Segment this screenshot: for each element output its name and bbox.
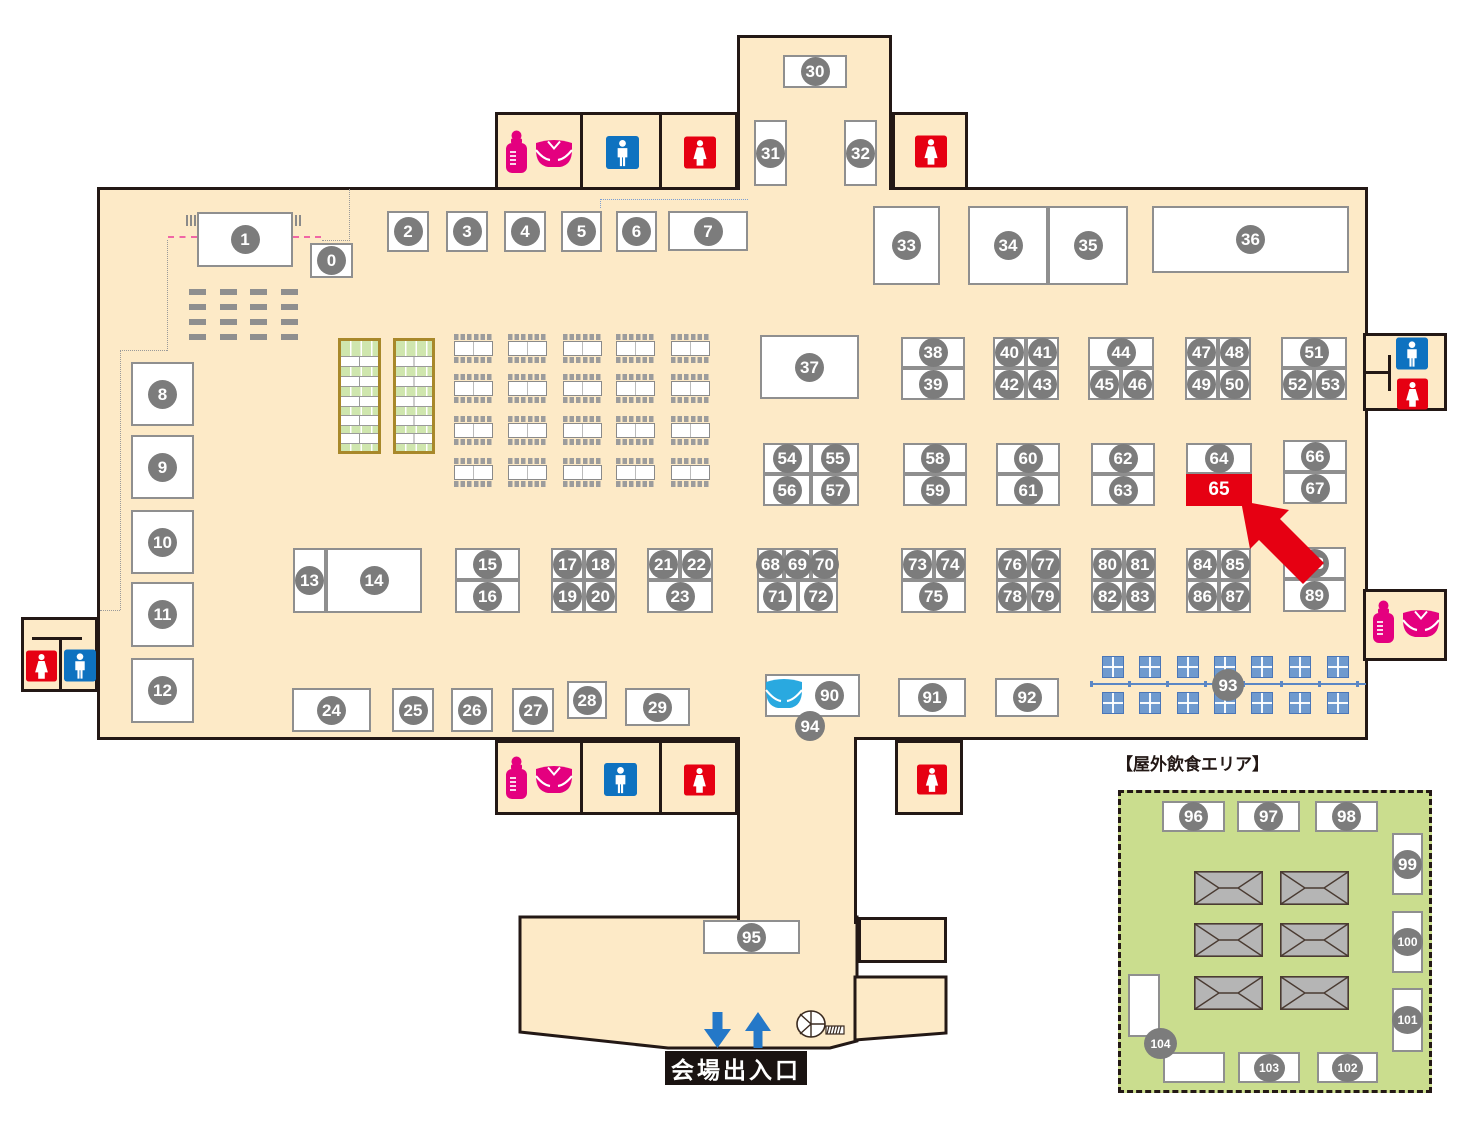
chair-mark — [281, 334, 298, 340]
wall-divider — [659, 112, 662, 190]
booth-67: 67 — [1283, 472, 1347, 504]
booth-19: 19 — [551, 580, 584, 613]
booth-44: 44 — [1088, 337, 1154, 368]
booth-71: 71 — [757, 580, 798, 613]
toilet-female-icon — [684, 764, 715, 796]
booth-2: 2 — [387, 211, 429, 252]
dotted-line-blue — [600, 199, 748, 200]
chair-mark — [281, 289, 298, 295]
booth-98: 98 — [1315, 801, 1378, 832]
blue-table — [1251, 692, 1273, 714]
booth-number: 83 — [1126, 582, 1155, 611]
booth-number: 33 — [892, 231, 921, 260]
booth-number: 92 — [1013, 683, 1042, 712]
booth-number: 27 — [519, 696, 548, 725]
table — [671, 381, 710, 396]
booth-number: 60 — [1014, 444, 1043, 473]
booth-number: 11 — [148, 600, 177, 629]
chair-row — [671, 397, 710, 403]
outdoor-room — [1163, 1052, 1225, 1083]
chair-row — [563, 481, 602, 487]
booth-number: 30 — [801, 57, 830, 86]
table — [616, 423, 655, 438]
chair-row — [563, 458, 602, 464]
booth-42: 42 — [993, 368, 1026, 400]
booth-number: 12 — [148, 676, 177, 705]
booth-15: 15 — [455, 548, 520, 580]
booth-51: 51 — [1281, 337, 1347, 368]
low-table — [396, 396, 432, 407]
chair-row — [671, 439, 710, 445]
chair-mark — [250, 319, 267, 325]
booth-number: 97 — [1254, 802, 1283, 831]
low-table — [341, 356, 378, 367]
booth-number: 36 — [1236, 225, 1265, 254]
booth-number: 23 — [666, 582, 695, 611]
booth-number: 59 — [921, 476, 950, 505]
booth-number: 74 — [936, 550, 965, 579]
table — [454, 465, 493, 480]
diaper-icon — [763, 674, 805, 715]
booth-29: 29 — [625, 688, 690, 726]
booth-number: 18 — [586, 550, 615, 579]
low-table — [341, 415, 378, 426]
booth-number: 62 — [1109, 444, 1138, 473]
stage-marker-pink — [168, 236, 197, 238]
table — [563, 465, 602, 480]
booth-number: 5 — [567, 217, 596, 246]
booth-97: 97 — [1237, 801, 1300, 832]
dotted-line — [322, 240, 350, 241]
baby-care-icon — [503, 756, 575, 800]
booth-number: 4 — [511, 217, 540, 246]
booth-number: 51 — [1300, 338, 1329, 367]
booth-9: 9 — [131, 435, 194, 499]
booth-45: 45 — [1088, 368, 1121, 400]
booth-number: 24 — [317, 696, 346, 725]
table — [454, 423, 493, 438]
booth-86: 86 — [1186, 580, 1219, 613]
wall-divider — [580, 112, 583, 190]
wall-divider — [1388, 355, 1391, 391]
booth-number: 91 — [918, 683, 947, 712]
booth-number: 25 — [399, 696, 428, 725]
chair-row — [671, 481, 710, 487]
booth-11: 11 — [131, 582, 194, 647]
booth-number: 63 — [1109, 476, 1138, 505]
stage-marker-pink — [293, 236, 321, 238]
chair-row — [616, 357, 655, 363]
booth-number: 50 — [1220, 370, 1249, 399]
arrow-up-icon — [745, 1012, 771, 1048]
south-corridor — [737, 737, 857, 924]
chair-row — [671, 357, 710, 363]
highlight-arrow-icon — [1241, 501, 1341, 601]
chair-row — [508, 481, 547, 487]
blue-table — [1289, 692, 1311, 714]
low-table — [396, 356, 432, 367]
table — [563, 381, 602, 396]
booth-62: 62 — [1091, 443, 1155, 474]
booth-number: 44 — [1107, 338, 1136, 367]
blue-table — [1139, 656, 1161, 678]
booth-74: 74 — [934, 548, 966, 580]
booth-number: 26 — [458, 696, 487, 725]
booth-80: 80 — [1091, 548, 1124, 580]
table — [508, 465, 547, 480]
blue-table — [1177, 692, 1199, 714]
booth-21: 21 — [647, 548, 680, 580]
booth-25: 25 — [392, 688, 434, 732]
outdoor-area-title: 【屋外飲食エリア】 — [1116, 750, 1269, 775]
side-room — [858, 917, 947, 963]
booth-17: 17 — [551, 548, 584, 580]
chair-row — [508, 397, 547, 403]
chair-mark — [189, 304, 206, 310]
booth-number: 46 — [1123, 370, 1152, 399]
booth-22: 22 — [680, 548, 713, 580]
toilet-female-icon — [26, 650, 57, 682]
chair-row — [454, 481, 493, 487]
booth-56: 56 — [763, 474, 811, 506]
booth-94-marker: 94 — [795, 711, 825, 741]
baby-care-icon — [503, 130, 575, 174]
booth-53: 53 — [1314, 368, 1347, 400]
chair-row — [616, 481, 655, 487]
booth-13: 13 — [293, 548, 326, 613]
dotted-line — [100, 610, 120, 611]
table — [508, 381, 547, 396]
booth-20: 20 — [584, 580, 617, 613]
booth-60: 60 — [996, 443, 1060, 474]
chair-row — [563, 439, 602, 445]
blue-table — [1177, 656, 1199, 678]
wall-divider — [1366, 371, 1390, 374]
chair-row — [616, 397, 655, 403]
booth-10: 10 — [131, 510, 194, 574]
booth-number: 64 — [1205, 444, 1234, 473]
booth-70: 70 — [811, 548, 838, 580]
chair-row — [616, 416, 655, 422]
booth-46: 46 — [1121, 368, 1154, 400]
booth-number: 19 — [553, 582, 582, 611]
booth-number: 82 — [1093, 582, 1122, 611]
booth-number: 37 — [795, 353, 824, 382]
booth-number: 16 — [473, 582, 502, 611]
chair-row — [454, 357, 493, 363]
chair-row — [563, 357, 602, 363]
booth-73: 73 — [901, 548, 934, 580]
booth-number: 56 — [773, 476, 802, 505]
toilet-male-icon — [1396, 337, 1428, 370]
booth-18: 18 — [584, 548, 617, 580]
booth-43: 43 — [1026, 368, 1059, 400]
booth-number: 22 — [682, 550, 711, 579]
dotted-line — [120, 350, 121, 610]
booth-number: 81 — [1126, 550, 1155, 579]
table — [671, 465, 710, 480]
booth-number: 29 — [643, 693, 672, 722]
wall-divider — [659, 740, 662, 815]
booth-number: 99 — [1393, 850, 1422, 879]
booth-50: 50 — [1218, 368, 1251, 400]
booth-37: 37 — [760, 335, 859, 399]
booth-number: 100 — [1392, 928, 1423, 956]
chair-row — [671, 334, 710, 340]
blue-table — [1139, 692, 1161, 714]
booth-number: 15 — [473, 550, 502, 579]
tent — [1194, 976, 1263, 1010]
booth-number: 72 — [804, 582, 833, 611]
chair-row — [563, 416, 602, 422]
wall-divider — [59, 640, 62, 690]
chair-mark — [220, 304, 237, 310]
booth-number: 103 — [1254, 1054, 1285, 1082]
chair-row — [616, 334, 655, 340]
chair-row — [616, 439, 655, 445]
booth-41: 41 — [1026, 337, 1059, 368]
booth-61: 61 — [996, 474, 1060, 506]
dotted-line — [349, 189, 350, 241]
tent — [1280, 871, 1349, 905]
booth-30: 30 — [783, 55, 847, 88]
table — [616, 381, 655, 396]
booth-number: 70 — [810, 550, 839, 579]
toilet-female-icon — [684, 136, 716, 169]
low-table — [396, 415, 432, 426]
booth-93-marker: 93 — [1212, 669, 1244, 701]
booth-5: 5 — [561, 211, 602, 252]
blue-table — [1102, 656, 1124, 678]
booth-number: 47 — [1187, 338, 1216, 367]
chair-row — [671, 374, 710, 380]
dotted-line — [120, 350, 167, 351]
chair-row — [454, 397, 493, 403]
booth-7: 7 — [668, 211, 748, 251]
booth-number: 53 — [1316, 370, 1345, 399]
chair-mark — [220, 319, 237, 325]
chair-row — [616, 458, 655, 464]
booth-number: 66 — [1301, 442, 1330, 471]
tent — [1194, 871, 1263, 905]
booth-75: 75 — [901, 580, 966, 613]
chair-row — [454, 439, 493, 445]
table — [508, 341, 547, 356]
booth-35: 35 — [1048, 206, 1128, 285]
booth-number: 21 — [649, 550, 678, 579]
booth-number: 96 — [1179, 802, 1208, 831]
booth-number: 7 — [694, 217, 723, 246]
chair-mark — [189, 334, 206, 340]
chair-row — [563, 397, 602, 403]
booth-number: 10 — [148, 528, 177, 557]
table — [563, 341, 602, 356]
table — [671, 423, 710, 438]
table — [508, 423, 547, 438]
booth-34: 34 — [968, 206, 1048, 285]
booth-12: 12 — [131, 658, 194, 723]
booth-24: 24 — [292, 688, 371, 732]
toilet-female-icon — [1397, 378, 1428, 410]
booth-99: 99 — [1392, 833, 1423, 895]
booth-number: 86 — [1188, 582, 1217, 611]
booth-38: 38 — [901, 337, 965, 368]
tent — [1194, 923, 1263, 957]
tatami-seating — [393, 338, 435, 454]
tatami-seating — [338, 338, 381, 454]
booth-59: 59 — [903, 474, 967, 506]
booth-102: 102 — [1317, 1052, 1378, 1083]
booth-number: 61 — [1014, 476, 1043, 505]
booth-number: 75 — [919, 582, 948, 611]
chair-mark — [220, 289, 237, 295]
booth-101: 101 — [1392, 988, 1423, 1052]
booth-number: 73 — [903, 550, 932, 579]
booth-104-marker: 104 — [1144, 1028, 1177, 1059]
booth-100: 100 — [1392, 911, 1423, 973]
chair-mark — [189, 289, 206, 295]
booth-49: 49 — [1185, 368, 1218, 400]
booth-number: 40 — [995, 338, 1024, 367]
table — [671, 341, 710, 356]
booth-26: 26 — [451, 688, 493, 732]
booth-number: 48 — [1220, 338, 1249, 367]
booth-47: 47 — [1185, 337, 1218, 368]
booth-76: 76 — [996, 548, 1029, 580]
booth-79: 79 — [1029, 580, 1061, 613]
dotted-line-blue — [600, 199, 601, 208]
booth-1: 1 — [197, 212, 293, 267]
booth-number: 34 — [994, 231, 1023, 260]
booth-72: 72 — [798, 580, 838, 613]
booth-36: 36 — [1152, 206, 1349, 273]
booth-23: 23 — [647, 580, 713, 613]
toilet-male-icon — [604, 763, 637, 796]
blue-table — [1102, 692, 1124, 714]
booth-number: 58 — [921, 444, 950, 473]
table — [454, 381, 493, 396]
booth-number: 101 — [1392, 1006, 1423, 1034]
booth-number: 55 — [821, 444, 850, 473]
booth-number: 49 — [1187, 370, 1216, 399]
booth-78: 78 — [996, 580, 1029, 613]
booth-39: 39 — [901, 368, 965, 400]
booth-number: 20 — [586, 582, 615, 611]
booth-8: 8 — [131, 362, 194, 426]
low-table — [341, 433, 378, 444]
low-table — [341, 396, 378, 407]
chair-row — [508, 374, 547, 380]
booth-number: 67 — [1301, 474, 1330, 503]
stairs-icon — [788, 1005, 850, 1045]
booth-number: 32 — [846, 139, 875, 168]
booth-number: 14 — [360, 566, 389, 595]
table — [563, 423, 602, 438]
booth-31: 31 — [754, 120, 787, 186]
booth-0: 0 — [310, 243, 353, 278]
chair-row — [563, 374, 602, 380]
booth-58: 58 — [903, 443, 967, 474]
booth-4: 4 — [504, 211, 546, 252]
entrance-label: 会場出入口 — [665, 1051, 807, 1085]
booth-number: 78 — [998, 582, 1027, 611]
booth-number: 3 — [453, 217, 482, 246]
booth-number: 68 — [756, 550, 785, 579]
booth-number: 71 — [763, 582, 792, 611]
booth-number: 35 — [1074, 231, 1103, 260]
booth-40: 40 — [993, 337, 1026, 368]
booth-66: 66 — [1283, 440, 1347, 472]
tent — [1280, 976, 1349, 1010]
booth-number: 84 — [1188, 550, 1217, 579]
chair-mark — [250, 289, 267, 295]
booth-number: 77 — [1031, 550, 1060, 579]
booth-48: 48 — [1218, 337, 1251, 368]
chair-row — [508, 334, 547, 340]
booth-number: 9 — [148, 453, 177, 482]
booth-number: 57 — [821, 476, 850, 505]
chair-row — [671, 458, 710, 464]
booth-83: 83 — [1124, 580, 1156, 613]
booth-number: 95 — [737, 923, 766, 952]
booth-number: 69 — [783, 550, 812, 579]
low-table — [396, 433, 432, 444]
booth-number: 1 — [231, 225, 260, 254]
booth-55: 55 — [811, 443, 859, 474]
booth-number: 43 — [1028, 370, 1057, 399]
booth-84: 84 — [1186, 548, 1219, 580]
booth-number: 13 — [295, 566, 324, 595]
booth-81: 81 — [1124, 548, 1156, 580]
dotted-line — [167, 240, 168, 351]
arrow-down-icon — [704, 1012, 731, 1048]
chair-row — [616, 374, 655, 380]
booth-number: 42 — [995, 370, 1024, 399]
booth-52: 52 — [1281, 368, 1314, 400]
booth-number: 52 — [1283, 370, 1312, 399]
booth-57: 57 — [811, 474, 859, 506]
chair-mark — [250, 334, 267, 340]
toilet-male-icon — [64, 649, 96, 682]
wall-divider — [32, 637, 82, 640]
booth-3: 3 — [446, 211, 488, 252]
booth-number: 0 — [317, 246, 346, 275]
low-table — [396, 376, 432, 387]
booth-103: 103 — [1238, 1052, 1300, 1083]
booth-54: 54 — [763, 443, 811, 474]
booth-number: 54 — [773, 444, 802, 473]
low-table — [341, 376, 378, 387]
baby-care-icon — [1370, 600, 1442, 644]
booth-number: 98 — [1332, 802, 1361, 831]
table — [616, 465, 655, 480]
booth-number: 41 — [1028, 338, 1057, 367]
wall-divider — [580, 740, 583, 815]
blue-table — [1327, 656, 1349, 678]
booth-6: 6 — [616, 211, 657, 252]
blue-table — [1251, 656, 1273, 678]
chair-row — [508, 458, 547, 464]
chair-row — [508, 357, 547, 363]
booth-number: 79 — [1031, 582, 1060, 611]
booth-63: 63 — [1091, 474, 1155, 506]
table — [616, 341, 655, 356]
booth-32: 32 — [844, 120, 877, 186]
booth-16: 16 — [455, 580, 520, 613]
booth-14: 14 — [326, 548, 422, 613]
booth-64: 64 — [1186, 443, 1252, 474]
booth-77: 77 — [1029, 548, 1061, 580]
